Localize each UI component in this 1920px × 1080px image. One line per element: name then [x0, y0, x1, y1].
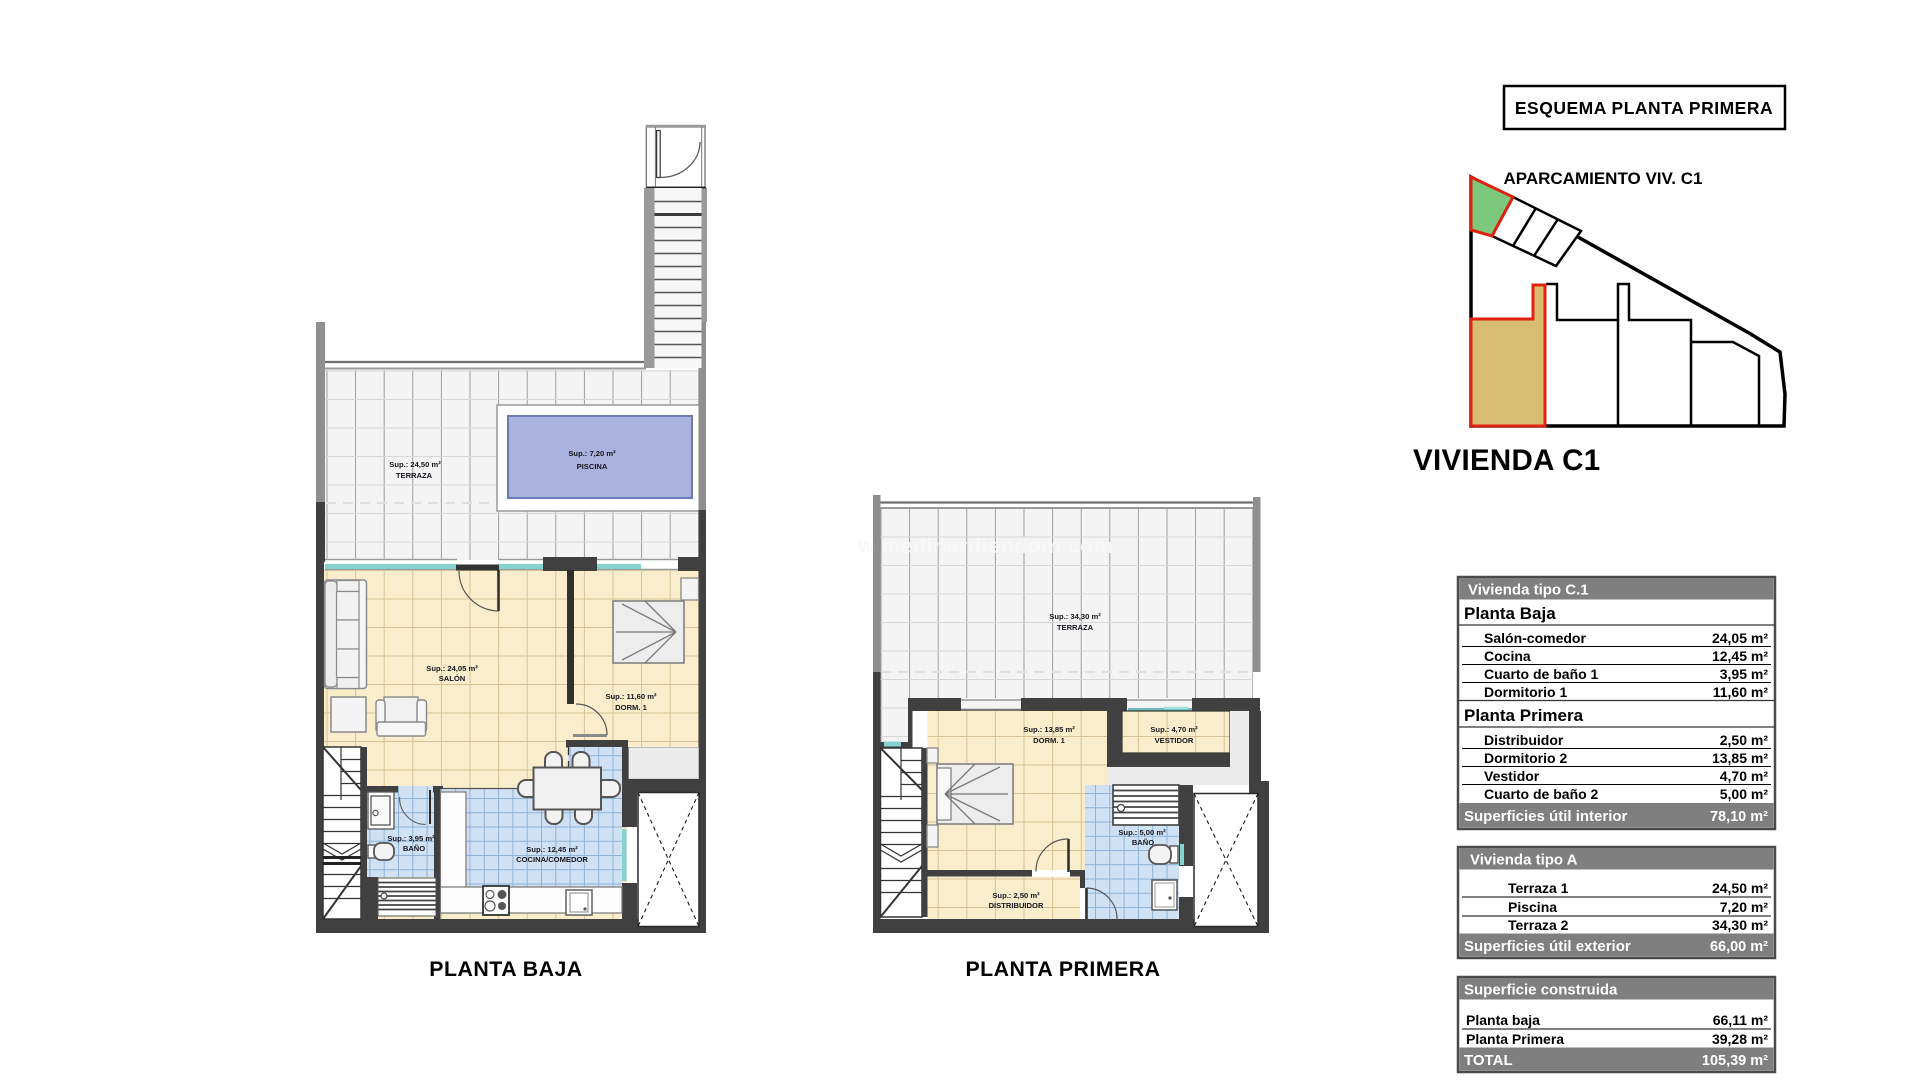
svg-text:TERRAZA: TERRAZA — [1057, 623, 1094, 632]
svg-text:PISCINA: PISCINA — [577, 462, 608, 471]
svg-text:Sup.: 2,50 m²: Sup.: 2,50 m² — [992, 891, 1040, 900]
svg-text:Sup.: 12,45 m²: Sup.: 12,45 m² — [526, 845, 578, 854]
svg-text:39,28 m²: 39,28 m² — [1712, 1031, 1768, 1047]
svg-text:Dormitorio 1: Dormitorio 1 — [1484, 684, 1567, 700]
svg-text:Vestidor: Vestidor — [1484, 768, 1540, 784]
svg-text:2,50 m²: 2,50 m² — [1720, 732, 1769, 748]
svg-text:Sup.: 24,50 m²: Sup.: 24,50 m² — [389, 460, 441, 469]
svg-text:VESTIDOR: VESTIDOR — [1155, 736, 1194, 745]
svg-text:PLANTA BAJA: PLANTA BAJA — [429, 957, 582, 981]
svg-text:Dormitorio 2: Dormitorio 2 — [1484, 750, 1567, 766]
svg-text:Terraza 2: Terraza 2 — [1508, 917, 1569, 933]
svg-text:7,20 m²: 7,20 m² — [1720, 899, 1769, 915]
svg-text:Sup.: 24,05 m²: Sup.: 24,05 m² — [426, 664, 478, 673]
svg-text:3,95 m²: 3,95 m² — [1720, 666, 1769, 682]
svg-text:Planta Primera: Planta Primera — [1466, 1031, 1564, 1047]
svg-text:105,39 m²: 105,39 m² — [1702, 1053, 1768, 1069]
svg-text:66,11 m²: 66,11 m² — [1713, 1012, 1769, 1028]
svg-text:11,60 m²: 11,60 m² — [1713, 684, 1769, 700]
svg-text:ESQUEMA PLANTA PRIMERA: ESQUEMA PLANTA PRIMERA — [1515, 98, 1773, 118]
svg-text:Piscina: Piscina — [1508, 899, 1557, 915]
svg-text:TOTAL: TOTAL — [1464, 1052, 1513, 1069]
svg-text:Superficies útil exterior: Superficies útil exterior — [1464, 938, 1631, 955]
svg-text:SALÓN: SALÓN — [439, 674, 466, 683]
svg-text:Sup.: 5,00 m²: Sup.: 5,00 m² — [1118, 828, 1166, 837]
svg-text:Vivienda tipo C.1: Vivienda tipo C.1 — [1468, 582, 1589, 599]
svg-text:Sup.: 13,85 m²: Sup.: 13,85 m² — [1023, 725, 1075, 734]
svg-text:Sup.: 7,20 m²: Sup.: 7,20 m² — [568, 449, 616, 458]
svg-text:66,00 m²: 66,00 m² — [1710, 939, 1768, 955]
svg-text:12,45 m²: 12,45 m² — [1712, 648, 1768, 664]
svg-text:Cuarto de baño 2: Cuarto de baño 2 — [1484, 786, 1599, 802]
svg-text:24,05 m²: 24,05 m² — [1712, 630, 1768, 646]
svg-text:24,50 m²: 24,50 m² — [1712, 880, 1768, 896]
svg-text:PLANTA PRIMERA: PLANTA PRIMERA — [965, 957, 1160, 981]
svg-text:Sup.: 34,30 m²: Sup.: 34,30 m² — [1049, 612, 1101, 621]
svg-text:5,00 m²: 5,00 m² — [1720, 786, 1769, 802]
svg-text:Distribuidor: Distribuidor — [1484, 732, 1564, 748]
svg-text:34,30 m²: 34,30 m² — [1712, 917, 1768, 933]
svg-text:Sup.: 11,60 m²: Sup.: 11,60 m² — [605, 692, 657, 701]
svg-text:13,85 m²: 13,85 m² — [1712, 750, 1768, 766]
svg-text:4,70 m²: 4,70 m² — [1720, 768, 1769, 784]
svg-text:Sup.: 4,70 m²: Sup.: 4,70 m² — [1150, 725, 1198, 734]
svg-text:DISTRIBUIDOR: DISTRIBUIDOR — [989, 901, 1044, 910]
svg-text:Salón-comedor: Salón-comedor — [1484, 630, 1586, 646]
svg-text:78,10 m²: 78,10 m² — [1710, 809, 1768, 825]
svg-text:TERRAZA: TERRAZA — [396, 471, 433, 480]
svg-text:Planta Baja: Planta Baja — [1464, 604, 1556, 623]
svg-text:BAÑO: BAÑO — [1132, 838, 1154, 847]
svg-text:BAÑO: BAÑO — [403, 844, 425, 853]
svg-text:Sup.: 3,95 m²: Sup.: 3,95 m² — [387, 834, 435, 843]
svg-text:Superficies útil interior: Superficies útil interior — [1464, 808, 1628, 825]
svg-text:Planta Primera: Planta Primera — [1464, 706, 1584, 725]
svg-text:Planta baja: Planta baja — [1466, 1012, 1540, 1028]
svg-text:Terraza 1: Terraza 1 — [1508, 880, 1569, 896]
svg-text:DORM. 1: DORM. 1 — [615, 703, 647, 712]
svg-text:Cuarto de baño 1: Cuarto de baño 1 — [1484, 666, 1599, 682]
svg-text:Superficie construida: Superficie construida — [1464, 982, 1618, 999]
svg-text:DORM. 1: DORM. 1 — [1033, 736, 1065, 745]
svg-text:VIVIENDA C1: VIVIENDA C1 — [1413, 444, 1600, 477]
svg-text:APARCAMIENTO VIV. C1: APARCAMIENTO VIV. C1 — [1503, 169, 1702, 188]
svg-text:COCINA/COMEDOR: COCINA/COMEDOR — [516, 855, 588, 864]
svg-text:w.medinardiendom.com: w.medinardiendom.com — [857, 534, 1113, 558]
svg-text:Vivienda tipo A: Vivienda tipo A — [1470, 852, 1578, 869]
svg-text:Cocina: Cocina — [1484, 648, 1531, 664]
